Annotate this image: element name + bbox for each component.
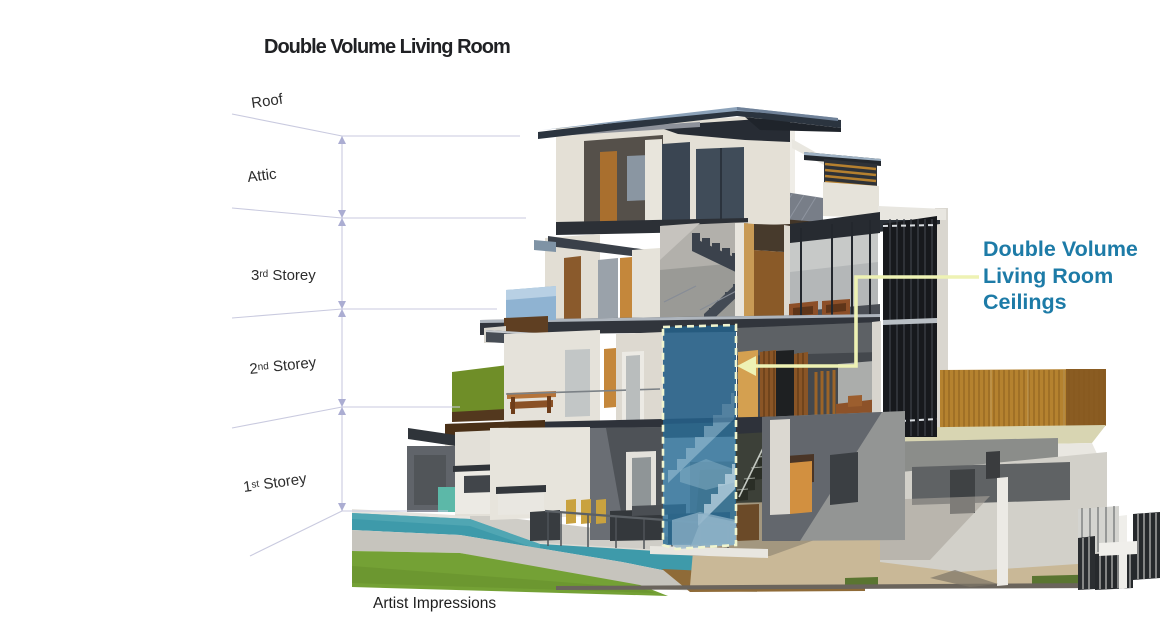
svg-text:Artist Impressions: Artist Impressions xyxy=(373,595,496,612)
svg-text:Double Volume Living Room: Double Volume Living Room xyxy=(264,36,510,58)
svg-text:Double Volume: Double Volume xyxy=(983,237,1138,261)
svg-text:Attic: Attic xyxy=(246,165,278,185)
svg-text:Ceilings: Ceilings xyxy=(983,290,1067,314)
svg-text:Living Room: Living Room xyxy=(983,264,1113,288)
